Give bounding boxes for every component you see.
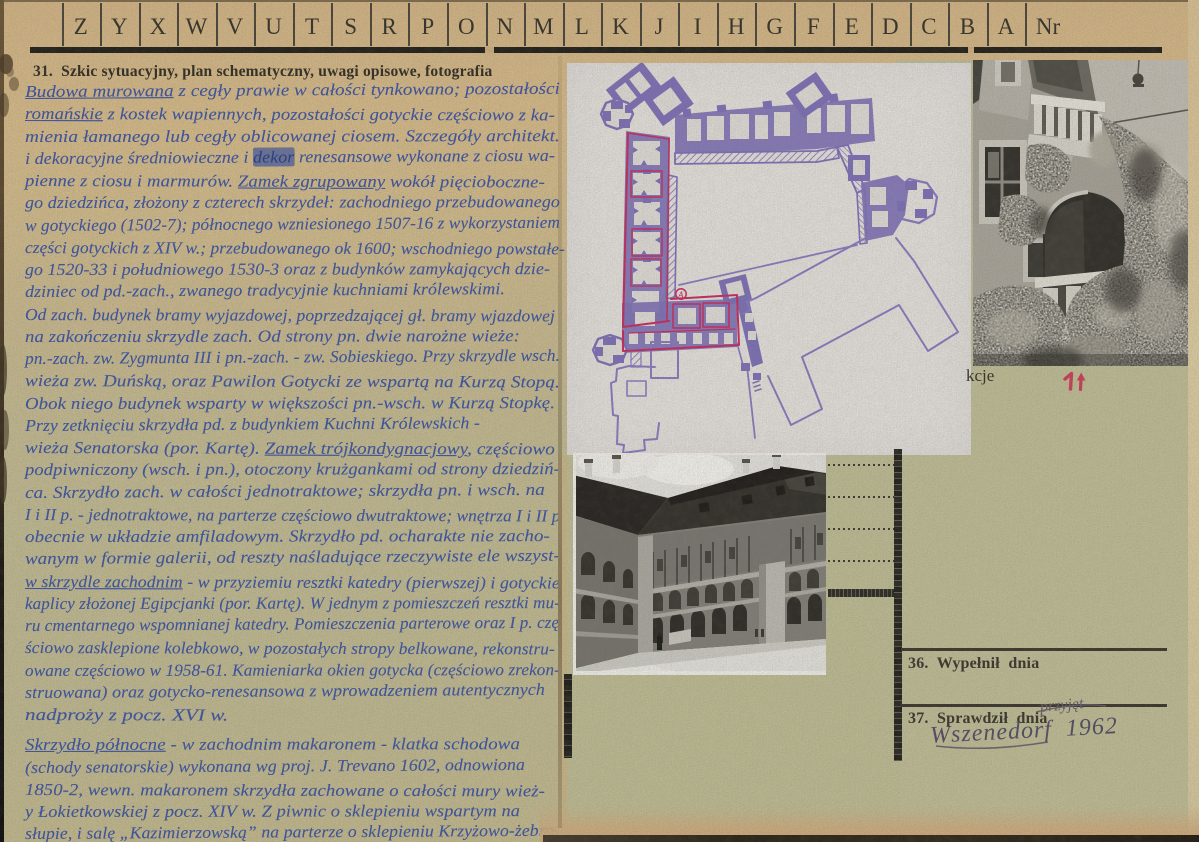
svg-text:A: A bbox=[677, 290, 684, 300]
